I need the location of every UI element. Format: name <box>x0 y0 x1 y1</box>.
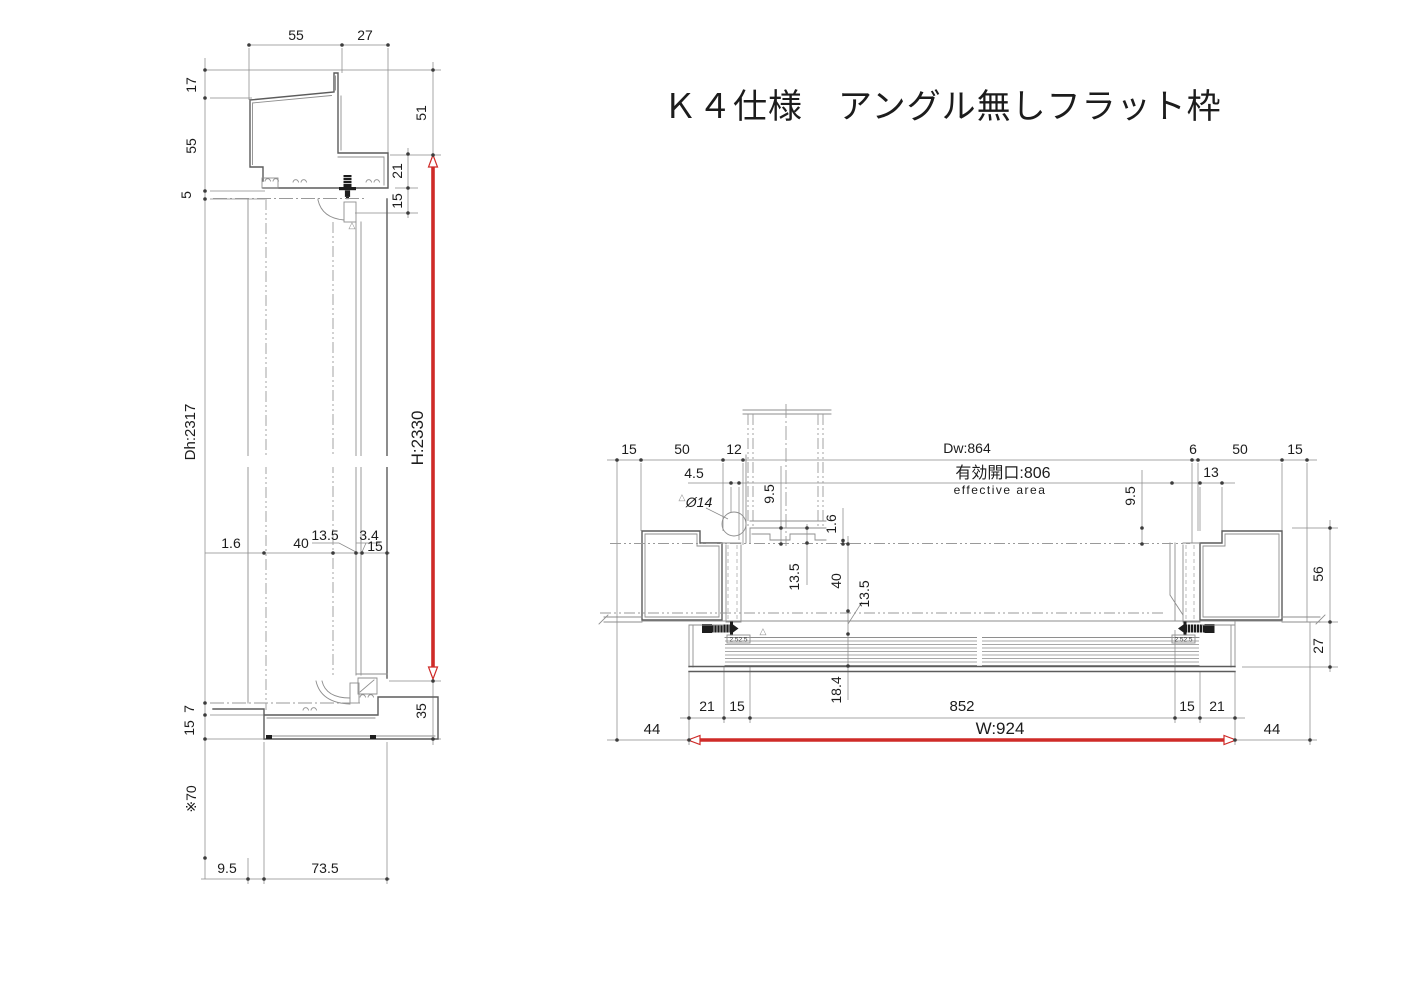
dim-left-5: 5 <box>178 191 194 199</box>
dim-4-5: 4.5 <box>684 465 704 481</box>
head-frame-profile <box>250 73 388 199</box>
dim-left-15: 15 <box>181 720 197 736</box>
dim-bottom-73-5: 73.5 <box>311 860 338 876</box>
dim-27: 27 <box>1310 638 1326 654</box>
dim-1-6: 1.6 <box>823 514 839 534</box>
dim-top-15-right: 15 <box>1287 441 1303 457</box>
door-top-detail: △ <box>213 199 367 231</box>
break-gap <box>977 635 982 668</box>
dim-door-height: Dh:2317 <box>182 404 199 461</box>
label-effective-area: effective area <box>954 483 1047 497</box>
head-screw <box>339 175 356 199</box>
dim-door-width: Dw:864 <box>943 440 991 456</box>
door-panel-lines <box>240 199 394 710</box>
dim-bottom-21-right: 21 <box>1209 698 1225 714</box>
dim-mid-40: 40 <box>293 535 309 551</box>
dim-phi-14: Ø14 <box>685 494 713 510</box>
finish-mark-triangle: △ <box>679 492 686 502</box>
sill-profile <box>210 674 438 739</box>
hs-dimension-texts: 15 50 12 Dw:864 有効開口:806 effective area … <box>621 440 1326 738</box>
horizontal-section-drawing: △ <box>599 404 1338 745</box>
dim-13-5-right: 13.5 <box>856 580 872 607</box>
vertical-section-drawing: △ 55 27 17 <box>178 27 441 884</box>
dim-top-55: 55 <box>288 27 304 43</box>
label-screw-right: 2.52.5 <box>1174 637 1192 644</box>
dim-frame-height: H:2330 <box>408 411 427 466</box>
dim-44-left: 44 <box>644 721 661 738</box>
dim-mid-1-6: 1.6 <box>221 535 241 551</box>
drawing-svg: Ｋ４仕様 アングル無しフラット枠 △ <box>0 0 1415 1000</box>
dim-left-17: 17 <box>183 77 199 93</box>
dim-top-50-left: 50 <box>674 441 690 457</box>
door-leaf-phantom <box>743 404 831 546</box>
dim-mid-15: 15 <box>367 538 383 554</box>
break-gap <box>240 456 394 467</box>
dim-left-55: 55 <box>183 138 199 154</box>
dim-bottom-21-left: 21 <box>699 698 715 714</box>
right-jamb-profile <box>1170 531 1325 667</box>
dim-top-6: 6 <box>1189 441 1197 457</box>
dim-right-15: 15 <box>389 193 405 209</box>
dim-right-21: 21 <box>389 163 405 179</box>
dim-13: 13 <box>1203 464 1219 480</box>
dim-bottom-15-left: 15 <box>729 698 745 714</box>
cad-sheet: Ｋ４仕様 アングル無しフラット枠 △ <box>0 0 1415 1000</box>
dim-top-12: 12 <box>726 441 742 457</box>
dim-9-5-left: 9.5 <box>761 484 777 504</box>
frame-width-dimension <box>688 736 1236 745</box>
dim-left-70: ※70 <box>183 785 199 813</box>
right-anchor-screw <box>1178 622 1215 636</box>
left-anchor-screw <box>702 622 739 636</box>
finish-mark-triangle: △ <box>349 220 356 230</box>
frame-height-dimension <box>429 155 438 679</box>
dim-bottom-9-5: 9.5 <box>217 860 237 876</box>
label-screw-left: 2.52.5 <box>729 637 747 644</box>
dim-effective-opening: 有効開口:806 <box>955 464 1050 482</box>
dim-bottom-852: 852 <box>949 698 974 715</box>
dim-56: 56 <box>1310 566 1326 582</box>
dim-frame-width: W:924 <box>976 719 1025 738</box>
dim-top-50-right: 50 <box>1232 441 1248 457</box>
dim-right-51: 51 <box>413 105 429 121</box>
dim-bottom-15-right: 15 <box>1179 698 1195 714</box>
dim-40: 40 <box>828 573 844 589</box>
dim-18-4: 18.4 <box>828 676 844 703</box>
threshold-strips <box>689 635 1235 672</box>
vs-dimension-texts: 55 27 17 55 5 Dh:2317 7 15 ※70 1.6 40 13… <box>178 27 429 876</box>
dim-mid-13-5: 13.5 <box>311 527 338 543</box>
dim-top-15-left: 15 <box>621 441 637 457</box>
dim-left-7: 7 <box>181 705 197 713</box>
finish-mark-triangle: △ <box>760 626 767 636</box>
dim-top-27: 27 <box>357 27 373 43</box>
dim-right-35: 35 <box>413 703 429 719</box>
dim-9-5-right: 9.5 <box>1122 486 1138 506</box>
drawing-title: Ｋ４仕様 アングル無しフラット枠 <box>663 88 1222 126</box>
dim-13-5-left: 13.5 <box>786 563 802 590</box>
dim-44-right: 44 <box>1264 721 1281 738</box>
